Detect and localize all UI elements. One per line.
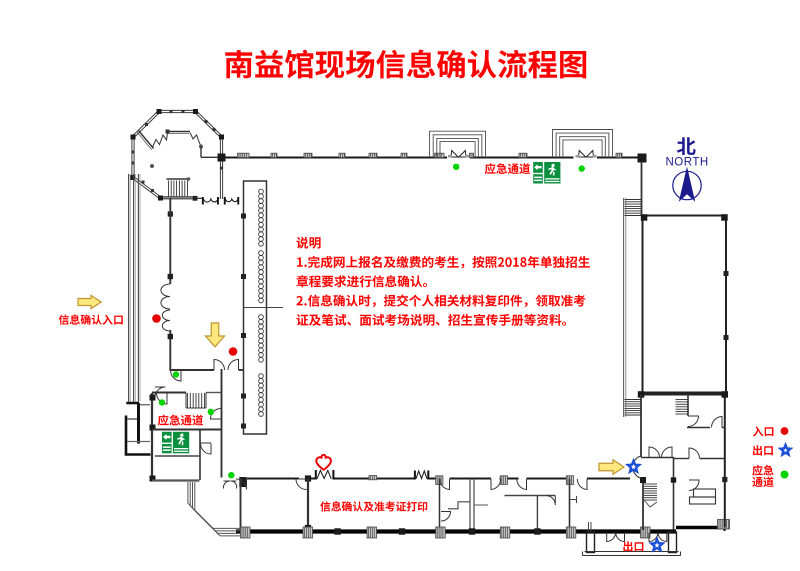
svg-text:NORTH: NORTH xyxy=(666,157,709,169)
